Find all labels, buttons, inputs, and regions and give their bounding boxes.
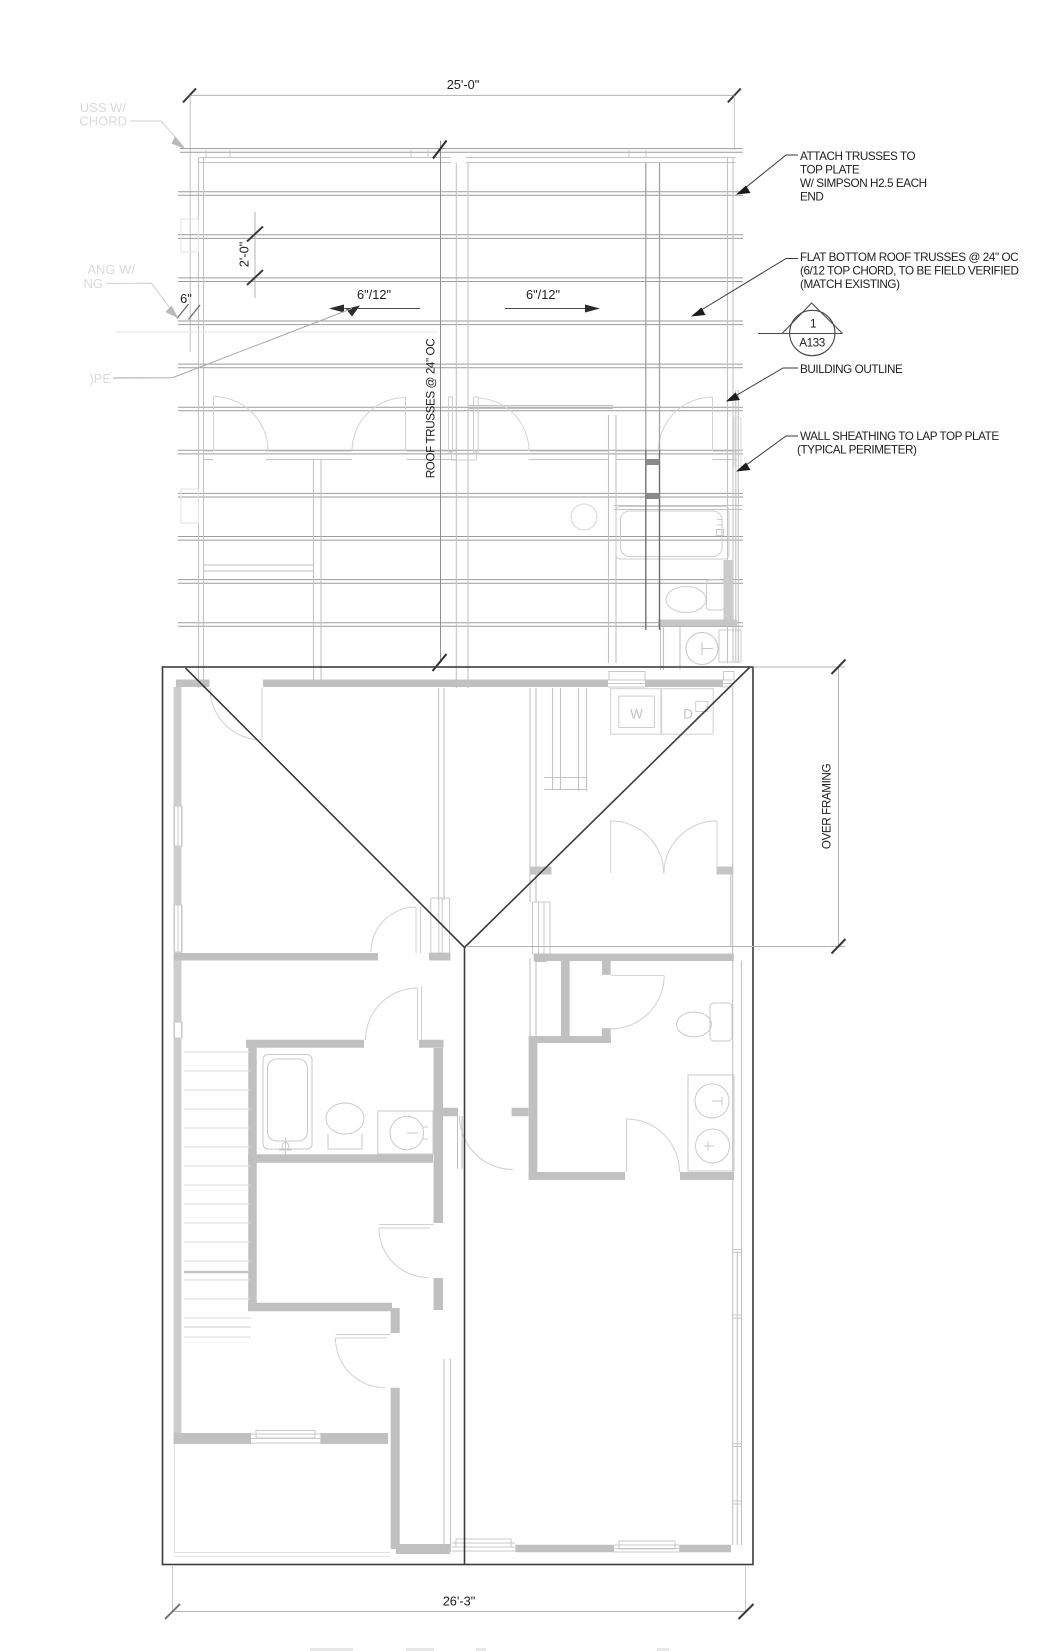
svg-text:25'-0": 25'-0" <box>447 77 480 92</box>
svg-text:ANG W/: ANG W/ <box>87 262 135 277</box>
svg-text:6"/12": 6"/12" <box>357 287 391 302</box>
svg-text:NG: NG <box>84 276 104 291</box>
svg-text:(MATCH EXISTING): (MATCH EXISTING) <box>800 278 900 291</box>
svg-text:)PE: )PE <box>89 371 111 386</box>
svg-text:26'-3": 26'-3" <box>443 1594 476 1609</box>
svg-text:CHORD: CHORD <box>79 114 127 129</box>
svg-text:FLAT BOTTOM ROOF TRUSSES @ 24": FLAT BOTTOM ROOF TRUSSES @ 24" OC <box>800 251 1018 264</box>
svg-text:BUILDING OUTLINE: BUILDING OUTLINE <box>800 363 903 376</box>
svg-text:ATTACH TRUSSES TO: ATTACH TRUSSES TO <box>800 150 915 163</box>
svg-text:W: W <box>630 707 643 722</box>
svg-text:6"/12": 6"/12" <box>526 287 560 302</box>
svg-text:A133: A133 <box>799 337 825 350</box>
svg-text:W/ SIMPSON H2.5 EACH: W/ SIMPSON H2.5 EACH <box>800 177 927 190</box>
svg-text:WALL SHEATHING TO LAP TOP PLAT: WALL SHEATHING TO LAP TOP PLATE <box>800 430 999 443</box>
svg-text:ROOF TRUSSES @ 24" OC: ROOF TRUSSES @ 24" OC <box>425 339 438 478</box>
svg-text:(TYPICAL PERIMETER): (TYPICAL PERIMETER) <box>797 444 917 457</box>
svg-text:(6/12 TOP CHORD, TO BE FIELD V: (6/12 TOP CHORD, TO BE FIELD VERIFIED <box>800 265 1019 278</box>
svg-text:1: 1 <box>810 318 816 331</box>
svg-text:D: D <box>683 707 693 722</box>
svg-text:6": 6" <box>180 291 192 306</box>
svg-text:OVER FRAMING: OVER FRAMING <box>821 764 834 850</box>
svg-text:2'-0": 2'-0" <box>237 242 252 267</box>
svg-text:END: END <box>800 191 823 204</box>
svg-text:TOP PLATE: TOP PLATE <box>800 164 860 177</box>
